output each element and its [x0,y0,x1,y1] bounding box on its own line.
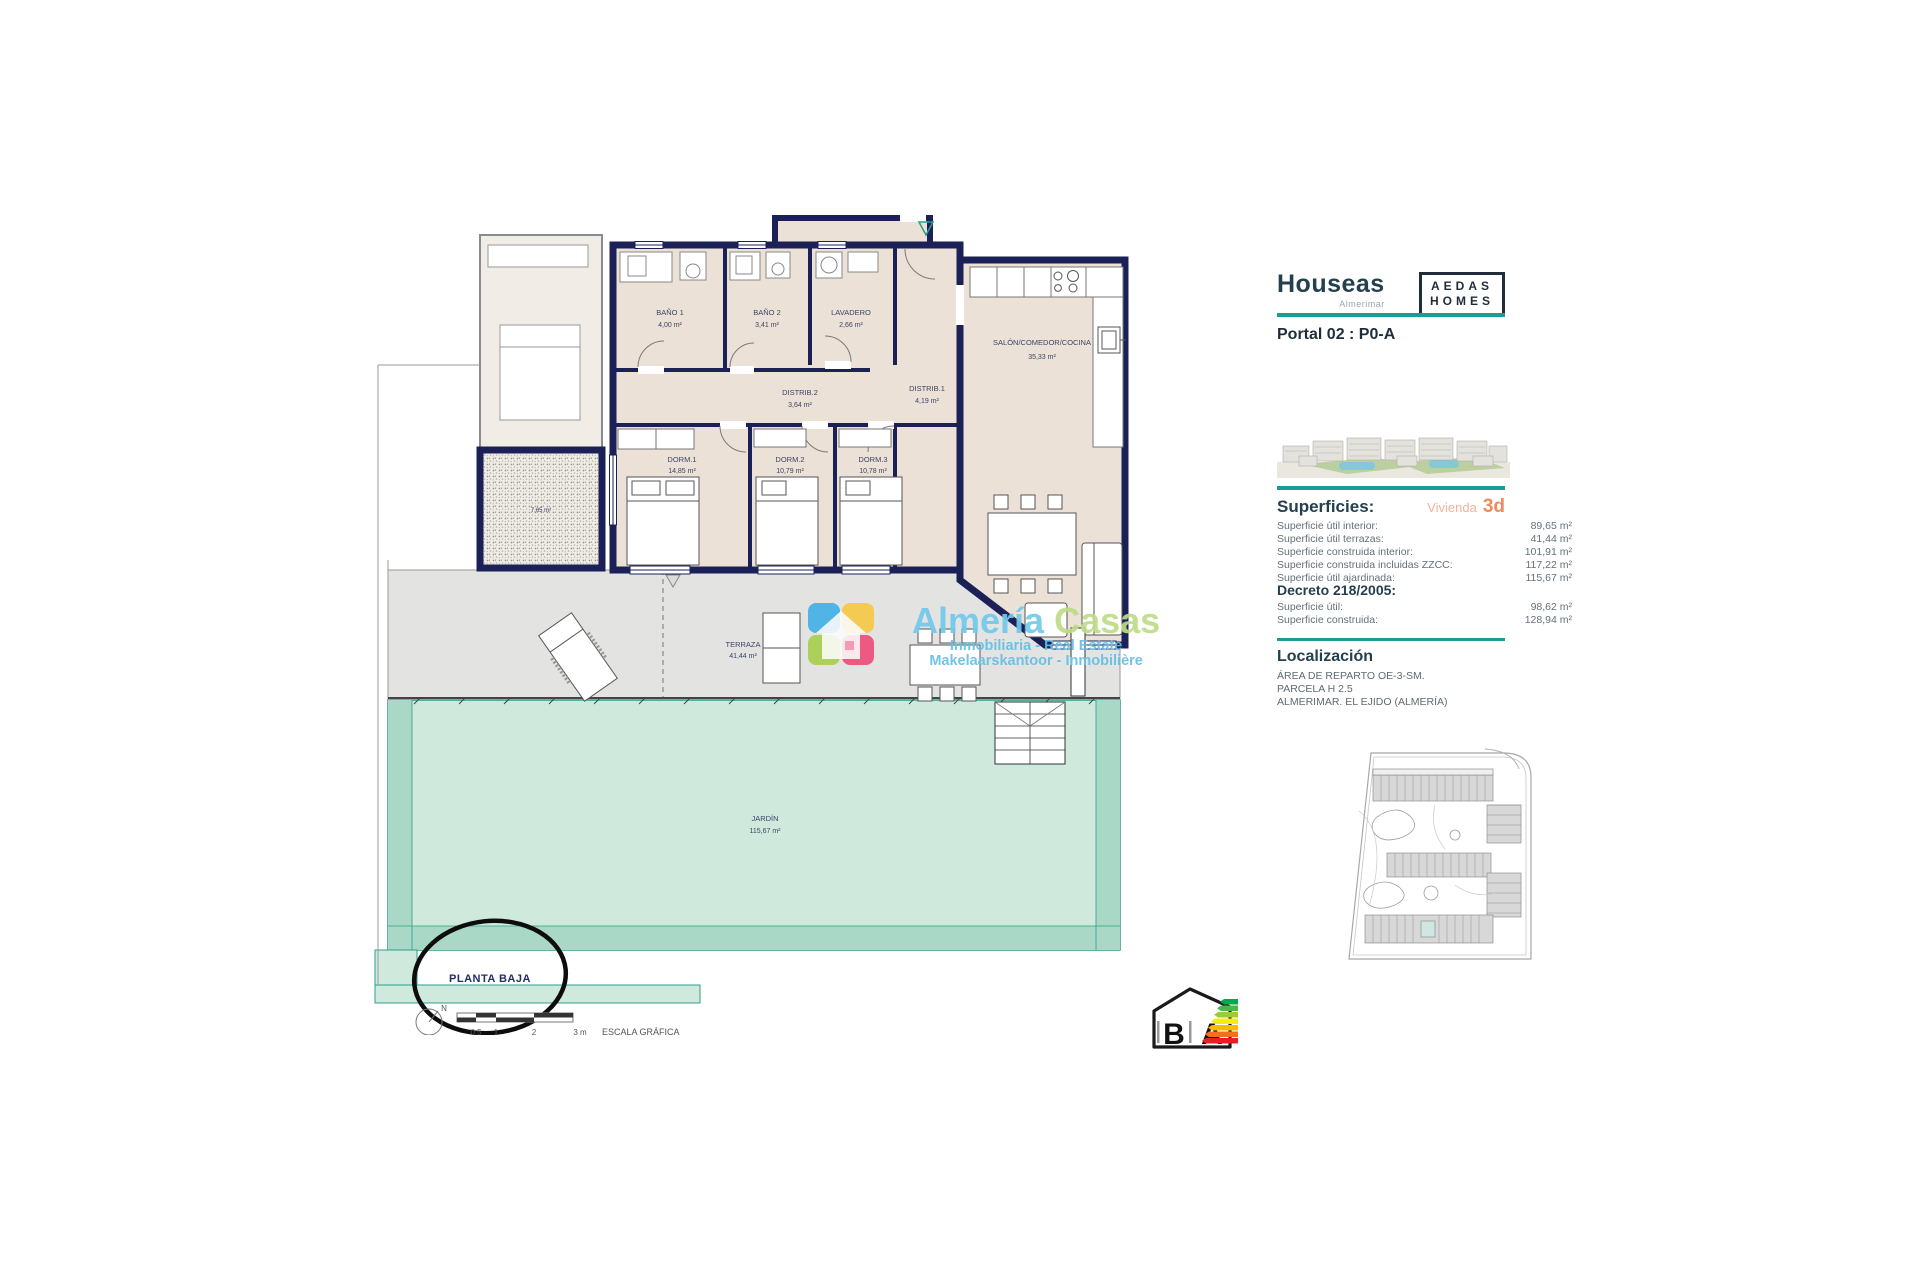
svg-text:1: 1 [494,1028,499,1035]
room-label: DISTRIB.2 [782,388,818,397]
site-plan-map [1335,745,1535,970]
decreto-title: Decreto 218/2005: [1277,582,1572,598]
location-line: ÁREA DE REPARTO OE-3-SM. [1277,670,1572,683]
table-row: Superficie construida interior:101,91 m² [1277,546,1572,559]
divider [1277,313,1505,317]
neighbour-unit [480,235,602,450]
room-label: BAÑO 1 [656,308,684,317]
panel-header: Houseas Almerimar AEDAS HOMES [1277,272,1505,316]
decreto-section: Decreto 218/2005: Superficie útil:98,62 … [1277,582,1572,627]
svg-text:3,64 m²: 3,64 m² [788,402,812,409]
developer-logo: AEDAS HOMES [1419,272,1505,316]
superficies-table: Superficie útil interior:89,65 m² Superf… [1277,520,1572,585]
bathroom-fixtures [620,252,878,282]
svg-text:14,85 m²: 14,85 m² [668,468,696,475]
table-row: Superficie construida incluidas ZZCC:117… [1277,559,1572,572]
svg-text:10,78 m²: 10,78 m² [859,468,887,475]
floor-plan-sheet: { "plan": { "rooms": [ {"name": "BAÑO 1"… [0,0,1920,1280]
svg-text:115,67 m²: 115,67 m² [750,828,782,835]
scale-caption: ESCALA GRÁFICA [602,1027,680,1035]
hatched-patio: 7,65 m² [480,450,602,568]
project-brand-sub: Almerimar [1277,299,1385,309]
table-row: Superficie útil terrazas:41,44 m² [1277,533,1572,546]
room-label: TERRAZA [725,640,760,649]
location-line: ALMERIMAR. EL EJIDO (ALMERÍA) [1277,696,1572,709]
svg-text:2,66 m²: 2,66 m² [839,322,863,329]
watermark-tagline-1: Inmobiliaria - Real Estate [912,639,1160,654]
localizacion-section: Localización ÁREA DE REPARTO OE-3-SM. PA… [1277,648,1572,709]
complex-aerial-render [1277,424,1510,481]
north-label: N [441,1004,447,1013]
room-label: DORM.2 [775,455,804,464]
divider [1277,638,1505,641]
svg-text:3,41 m²: 3,41 m² [755,322,779,329]
svg-text:4,19 m²: 4,19 m² [915,398,939,405]
agency-watermark: AlmeríaCasas Inmobiliaria - Real Estate … [808,603,1160,669]
energy-letter-b: B [1163,1018,1185,1051]
room-label: BAÑO 2 [753,308,781,317]
room-label: DORM.3 [858,455,887,464]
table-row: Superficie construida:128,94 m² [1277,614,1572,627]
vivienda-value: 3d [1483,496,1505,517]
table-row: Superficie útil:98,62 m² [1277,601,1572,614]
svg-text:35,33 m²: 35,33 m² [1028,354,1056,361]
room-label: SALÓN/COMEDOR/COCINA [993,338,1091,347]
energy-rating-icon: B A [1146,985,1242,1053]
table-row: Superficie útil interior:89,65 m² [1277,520,1572,533]
localizacion-title: Localización [1277,648,1572,666]
watermark-brand-part1: Almería [912,600,1044,641]
room-label: DORM.1 [667,455,696,464]
superficies-header: Superficies: Vivienda3d [1277,496,1505,518]
superficies-title: Superficies: [1277,497,1374,517]
svg-text:2: 2 [532,1028,537,1035]
watermark-tagline-2: Makelaarskantoor - Inmobilière [912,654,1160,669]
patio-area-label: 7,65 m² [531,508,551,514]
location-line: PARCELA H 2.5 [1277,683,1572,696]
divider [1277,486,1505,490]
planta-baja-label: PLANTA BAJA [449,973,531,985]
svg-text:4,00 m²: 4,00 m² [658,322,682,329]
svg-text:3 m: 3 m [573,1028,587,1035]
room-label: JARDÍN [751,814,778,823]
north-compass: N [416,1004,447,1035]
room-label: LAVADERO [831,308,871,317]
vivienda-label: Vivienda [1427,500,1477,515]
room-label: DISTRIB.1 [909,384,945,393]
portal-title: Portal 02 : P0-A [1277,326,1395,344]
agency-logo-icon [808,603,876,669]
svg-text:41,44 m²: 41,44 m² [729,653,757,660]
svg-text:10,79 m²: 10,79 m² [776,468,804,475]
svg-text:0.5: 0.5 [470,1028,482,1035]
watermark-brand-part2: Casas [1054,600,1160,641]
project-brand: Houseas [1277,272,1385,297]
